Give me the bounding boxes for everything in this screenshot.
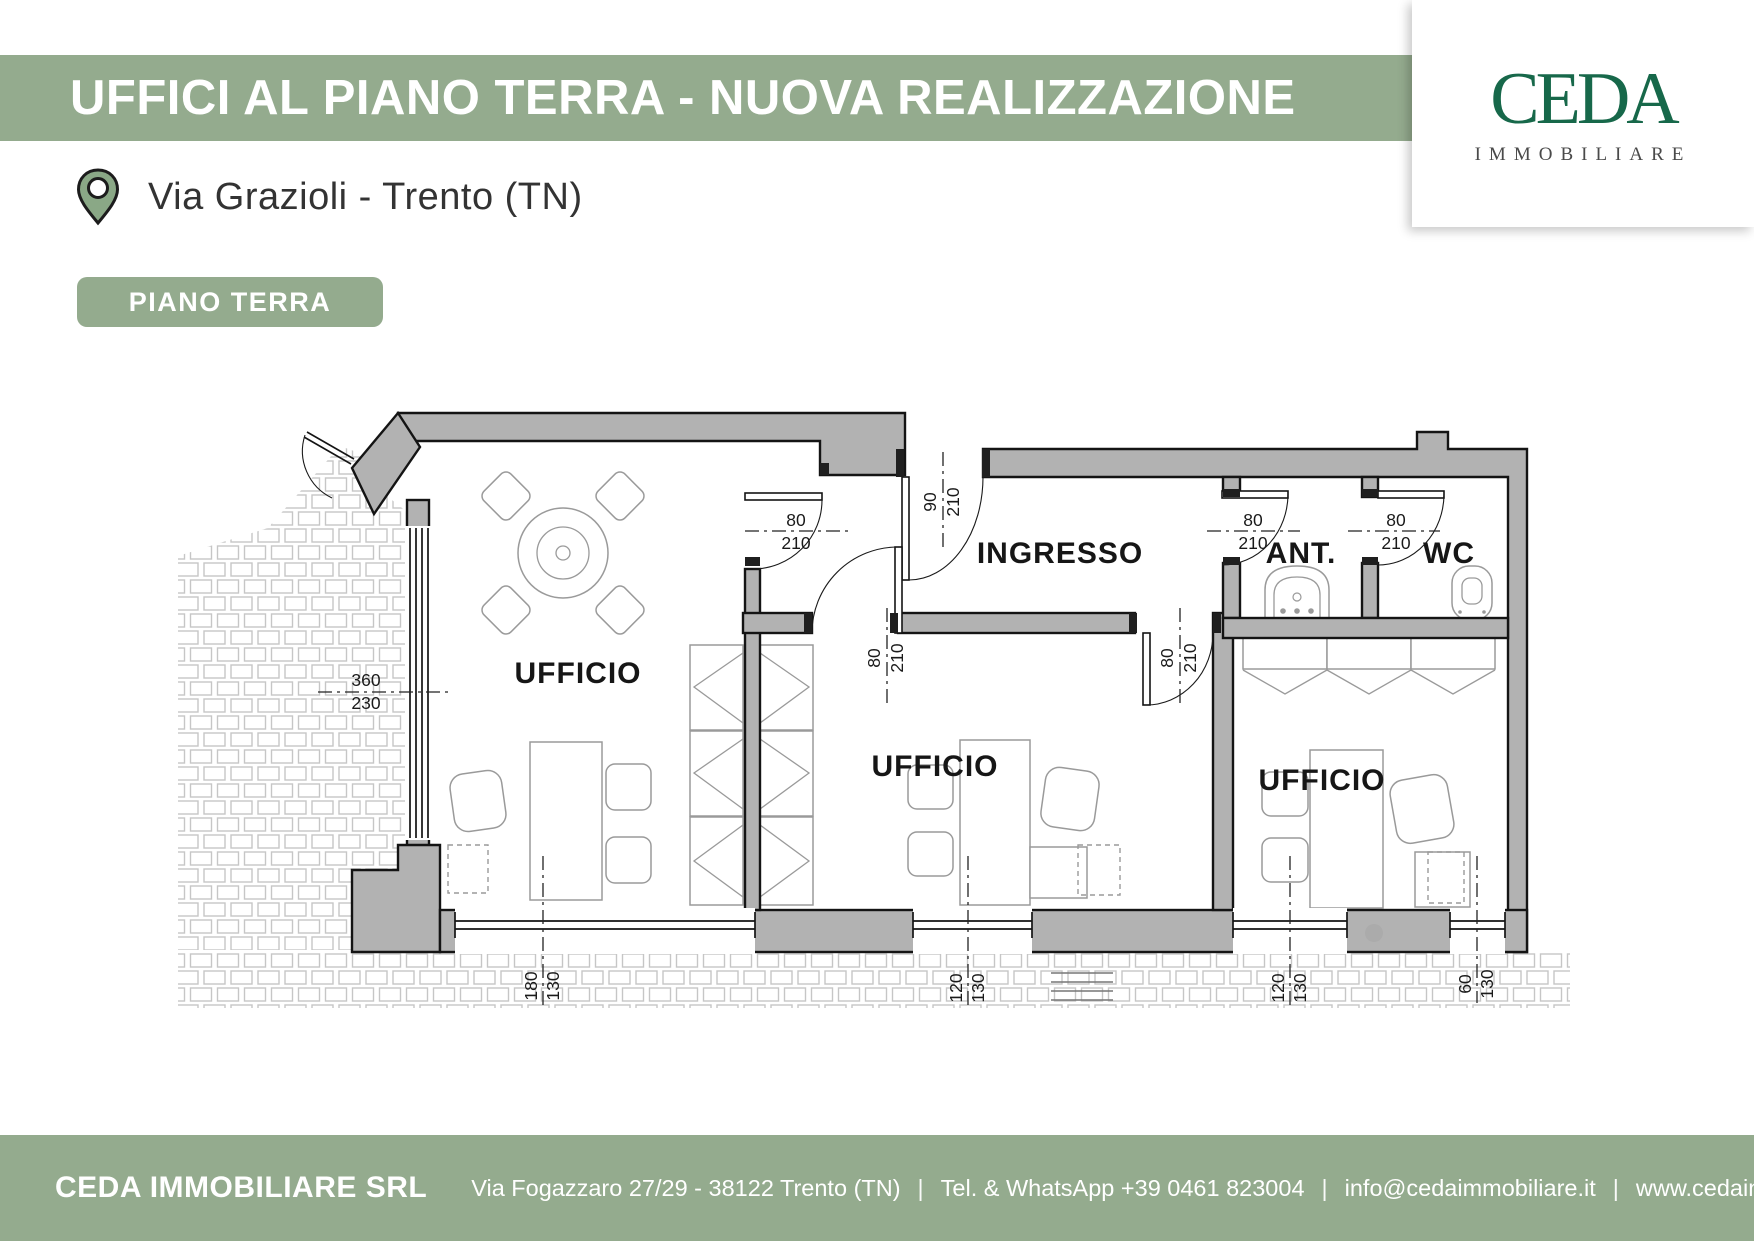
svg-text:120: 120 [1268, 973, 1288, 1002]
ceda-logo: CEDA [1490, 62, 1675, 136]
footer-bar: CEDA IMMOBILIARE SRL Via Fogazzaro 27/29… [0, 1135, 1754, 1241]
footer-separator: | [901, 1175, 941, 1202]
svg-text:210: 210 [1180, 643, 1200, 672]
svg-text:80: 80 [1243, 510, 1263, 530]
svg-text:180: 180 [521, 971, 541, 1000]
svg-text:120: 120 [946, 973, 966, 1002]
svg-text:60: 60 [1455, 974, 1475, 994]
svg-text:80: 80 [864, 648, 884, 668]
footer-website[interactable]: www.cedaimmobiliare.it [1636, 1175, 1754, 1202]
location-pin-icon [76, 168, 120, 226]
ceda-logo-subtitle: IMMOBILIARE [1475, 144, 1692, 166]
svg-text:80: 80 [1157, 648, 1177, 668]
footer-address: Via Fogazzaro 27/29 - 38122 Trento (TN) [471, 1175, 900, 1202]
svg-text:130: 130 [968, 973, 988, 1002]
svg-text:90: 90 [920, 492, 940, 512]
floor-badge-label: PIANO TERRA [129, 287, 332, 318]
title-banner: UFFICI AL PIANO TERRA - NUOVA REALIZZAZI… [0, 55, 1412, 141]
footer-company: CEDA IMMOBILIARE SRL [55, 1171, 427, 1205]
footer-email[interactable]: info@cedaimmobiliare.it [1345, 1175, 1596, 1202]
footer-phone: Tel. & WhatsApp +39 0461 823004 [941, 1175, 1305, 1202]
footer-separator: | [1596, 1175, 1636, 1202]
svg-text:210: 210 [781, 533, 810, 553]
room-label-office3: UFFICIO [1259, 764, 1386, 797]
room-label-office2: UFFICIO [872, 750, 999, 783]
svg-text:360: 360 [351, 670, 380, 690]
svg-text:130: 130 [1477, 969, 1497, 998]
location-row: Via Grazioli - Trento (TN) [76, 168, 583, 226]
room-label-wc: WC [1423, 537, 1475, 570]
svg-text:230: 230 [351, 693, 380, 713]
location-text: Via Grazioli - Trento (TN) [148, 176, 583, 219]
svg-text:210: 210 [1238, 533, 1267, 553]
page-title: UFFICI AL PIANO TERRA - NUOVA REALIZZAZI… [0, 55, 1412, 141]
svg-text:130: 130 [543, 971, 563, 1000]
footer-separator: | [1305, 1175, 1345, 1202]
floor-badge: PIANO TERRA [77, 277, 383, 327]
svg-text:80: 80 [1386, 510, 1406, 530]
room-label-ingresso: INGRESSO [977, 537, 1143, 570]
flyer-page: UFFICI AL PIANO TERRA - NUOVA REALIZZAZI… [0, 0, 1754, 1241]
svg-text:210: 210 [1381, 533, 1410, 553]
svg-text:210: 210 [943, 487, 963, 516]
ant-sink [1265, 566, 1329, 621]
logo-card: CEDA IMMOBILIARE [1412, 0, 1754, 227]
wall-symbol [1365, 924, 1383, 942]
floor-plan: 360 230 80 210 90 210 80 210 80 210 [150, 360, 1620, 1030]
svg-text:210: 210 [887, 643, 907, 672]
room-label-office1: UFFICIO [515, 657, 642, 690]
room-label-ant: ANT. [1266, 537, 1337, 570]
svg-text:80: 80 [786, 510, 806, 530]
wc-toilet [1452, 566, 1492, 620]
svg-text:130: 130 [1290, 973, 1310, 1002]
